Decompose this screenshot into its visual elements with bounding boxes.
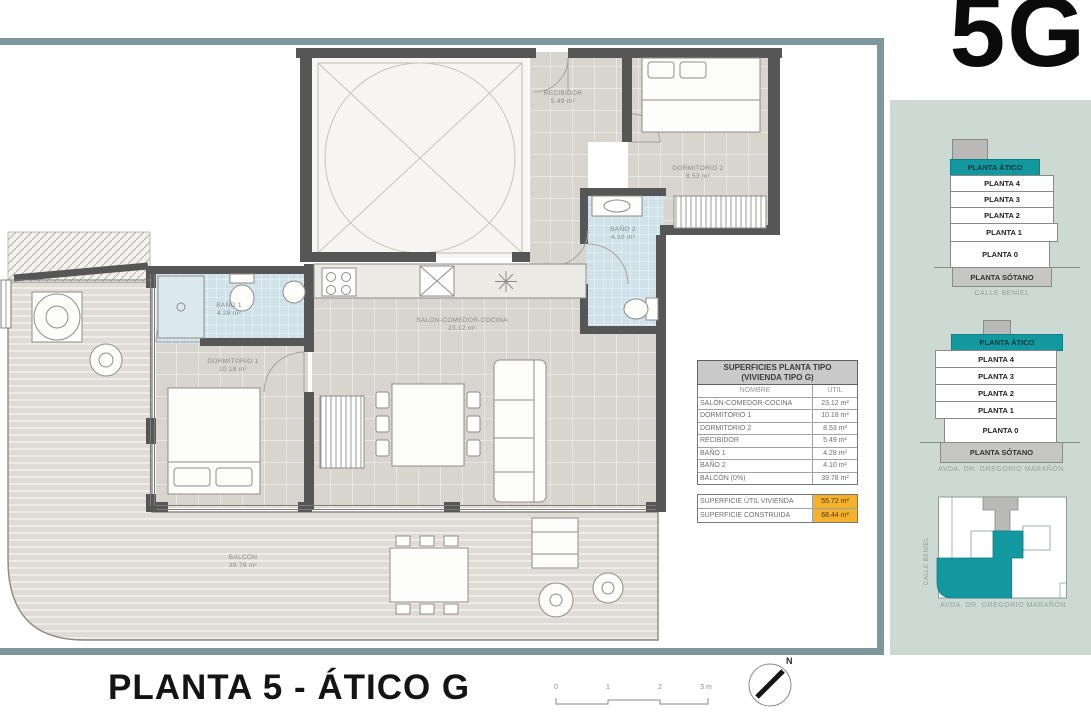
stack2-level-0: PLANTA 0 <box>944 418 1057 443</box>
stack2-level-1: PLANTA 1 <box>935 401 1057 419</box>
room-label-balcon: BALCÓN39.78 m² <box>229 554 258 570</box>
table-row: BALCÓN (0%)39.78 m² <box>698 473 857 485</box>
floor-plan-drawing <box>0 46 877 646</box>
roof-block <box>952 139 988 160</box>
scale-tick: 2 <box>658 684 662 691</box>
stack1-level-4: PLANTA 4 <box>950 175 1054 192</box>
surfaces-table-title: SUPERFICIES PLANTA TIPO (VIVIENDA TIPO G… <box>697 360 858 385</box>
site-plan <box>915 488 1091 613</box>
stack1-level-2: PLANTA 2 <box>950 207 1054 224</box>
stack2-level-sotano: PLANTA SÓTANO <box>940 442 1063 463</box>
surfaces-table: SUPERFICIES PLANTA TIPO (VIVIENDA TIPO G… <box>697 360 858 523</box>
table-row: RECIBIDOR5.49 m² <box>698 435 857 448</box>
scale-tick: 0 <box>554 684 558 691</box>
siteplan-caption: AVDA. DR. GREGORIO MARAÑÓN <box>940 602 1066 609</box>
stack1-level-sotano: PLANTA SÓTANO <box>952 267 1052 287</box>
stack2-level-2: PLANTA 2 <box>935 384 1057 402</box>
room-label-bano1: BAÑO 14.28 m² <box>216 302 242 318</box>
room-label-bano2: BAÑO 24.10 m² <box>610 226 636 242</box>
stack1-level-3: PLANTA 3 <box>950 191 1054 208</box>
siteplan-street-left: CALLE BENIEL <box>924 537 930 585</box>
scale-tick: 1 <box>606 684 610 691</box>
stack1-level-1: PLANTA 1 <box>950 223 1058 242</box>
table-header-row: NOMBRE ÚTIL <box>698 385 857 398</box>
table-row: BAÑO 24.10 m² <box>698 460 857 473</box>
table-row: SALÓN-COMEDOR-COCINA23.12 m² <box>698 398 857 411</box>
unit-logo: 5G <box>950 0 1087 82</box>
page-title: PLANTA 5 - ÁTICO G <box>108 668 470 708</box>
room-label-salon: SALON-COMEDOR-COCINA23.12 m² <box>416 317 508 333</box>
stack1-caption: CALLE BENIEL <box>974 290 1029 297</box>
north-label: N <box>786 656 793 666</box>
table-total-row: SUPERFICIE CONSTRUIDA68.44 m² <box>698 509 857 522</box>
stack2-level-atico: PLANTA ÁTICO <box>951 334 1063 351</box>
table-row: DORMITORIO 110.18 m² <box>698 410 857 423</box>
north-arrow-icon <box>744 658 798 712</box>
room-label-dormitorio1: DORMITORIO 110.18 m² <box>207 358 258 374</box>
stack1-level-0: PLANTA 0 <box>950 241 1050 268</box>
stack2-level-4: PLANTA 4 <box>935 350 1057 368</box>
room-label-recibidor: RECIBIDOR5.49 m² <box>544 90 583 106</box>
roof-block <box>983 320 1011 335</box>
page: RECIBIDOR5.49 m² DORMITORIO 28.53 m² BAÑ… <box>0 0 1091 720</box>
scale-tick: 3 m <box>700 684 712 691</box>
stack2-caption: AVDA. DR. GREGORIO MARAÑÓN <box>938 466 1064 473</box>
table-totals: SUPERFICIE ÚTIL VIVIENDA55.72 m² SUPERFI… <box>697 494 858 523</box>
table-total-row: SUPERFICIE ÚTIL VIVIENDA55.72 m² <box>698 495 857 509</box>
stack1-level-atico: PLANTA ÁTICO <box>950 159 1040 176</box>
table-row: BAÑO 14.28 m² <box>698 448 857 461</box>
table-row: DORMITORIO 28.53 m² <box>698 423 857 436</box>
room-label-dormitorio2: DORMITORIO 28.53 m² <box>672 165 723 181</box>
stack2-level-3: PLANTA 3 <box>935 367 1057 385</box>
